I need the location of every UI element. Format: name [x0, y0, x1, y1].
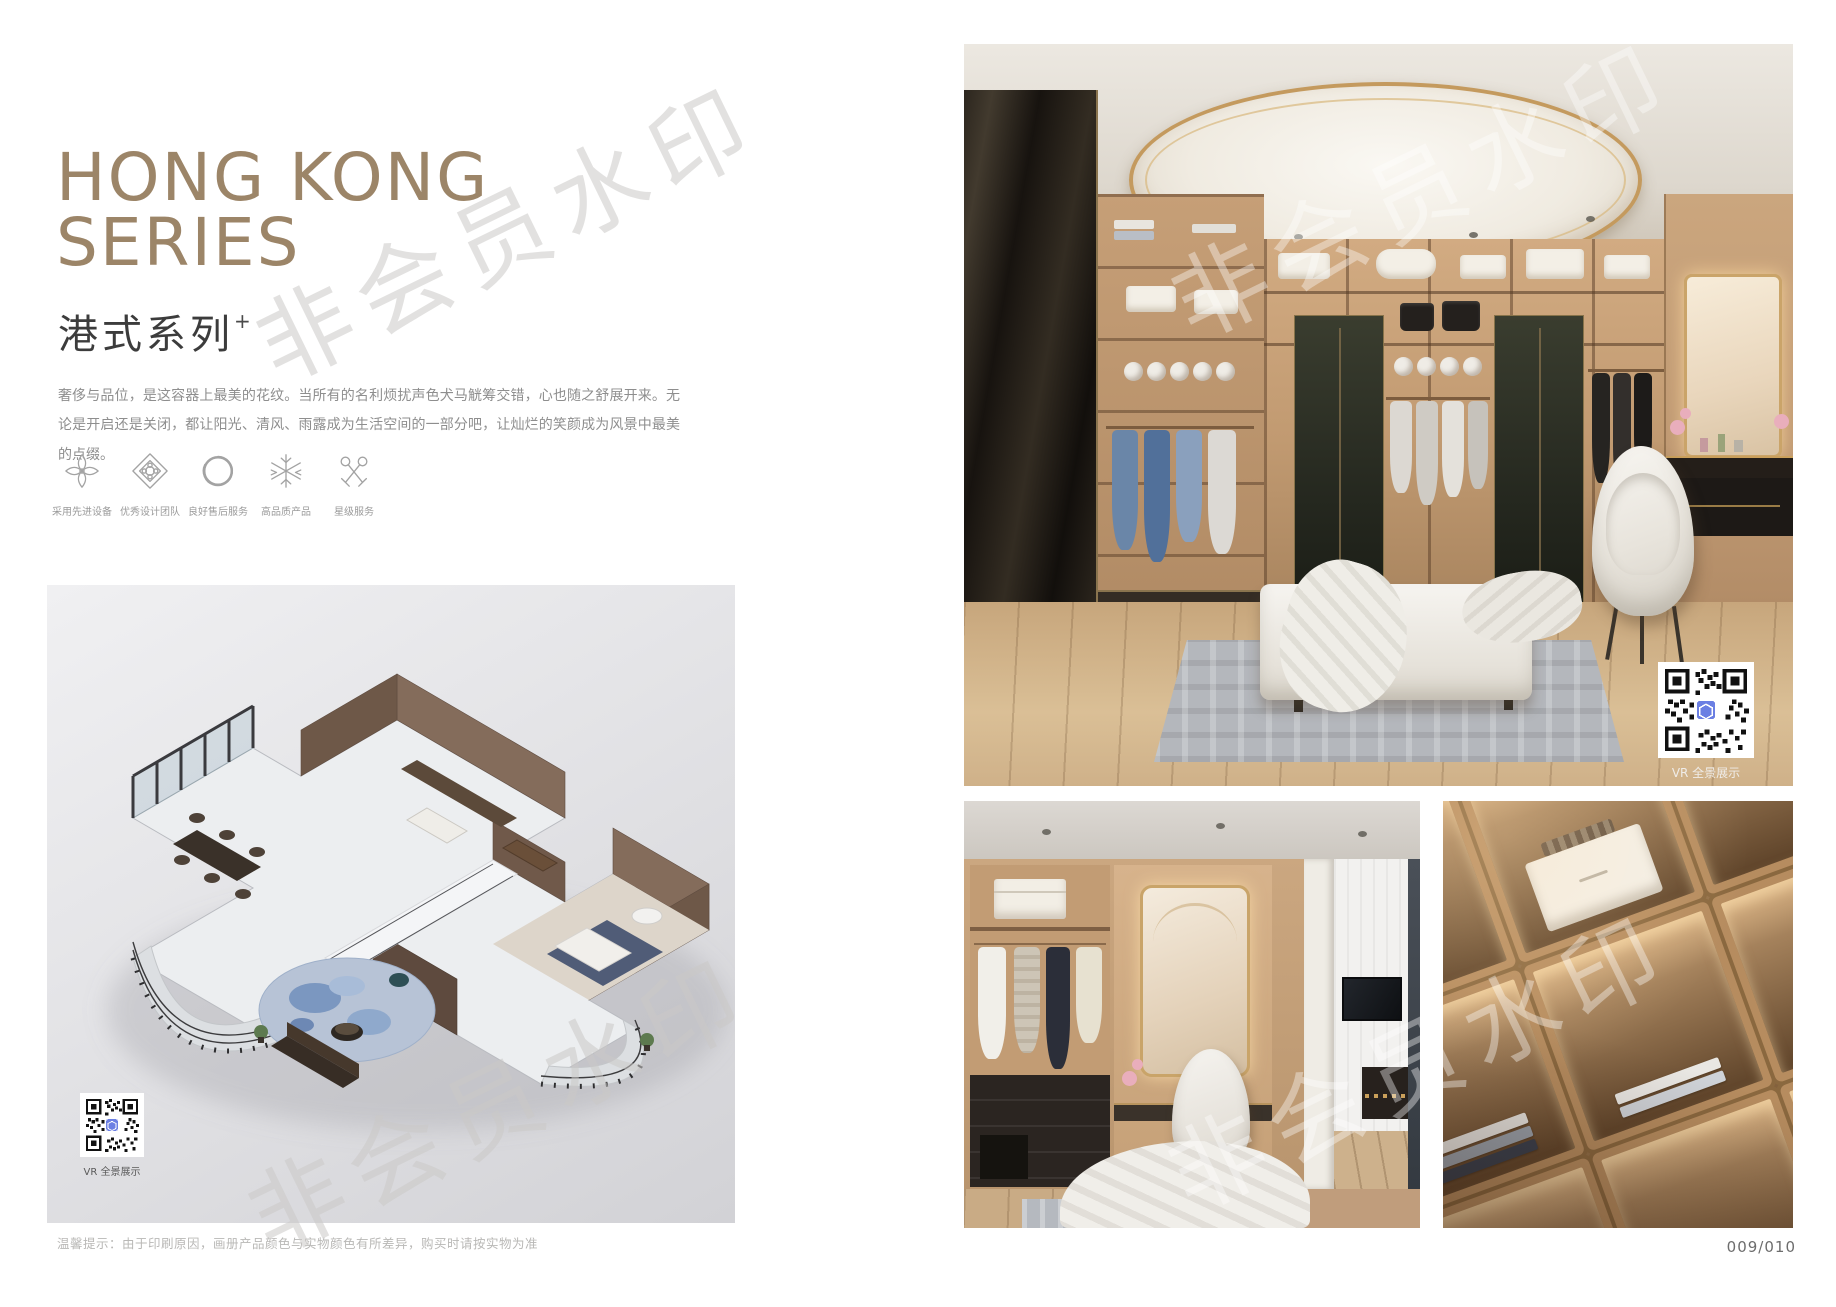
- pink-flowers: [1774, 414, 1789, 429]
- hanging-rod: [1106, 426, 1254, 429]
- feature-label: 采用先进设备: [50, 503, 114, 518]
- dressing-ceiling: [964, 801, 1420, 859]
- pink-flowers: [1122, 1071, 1137, 1086]
- spotlight: [1469, 232, 1478, 238]
- vanity-mirror: [1684, 274, 1782, 458]
- storage-box: [1604, 255, 1650, 279]
- pink-flowers: [1132, 1059, 1143, 1070]
- glass-partition: [1408, 859, 1420, 1189]
- hanging-garment: [1416, 401, 1438, 505]
- crossed-keys-icon: [335, 475, 373, 494]
- spotlight: [1358, 831, 1367, 837]
- feature-item: 良好售后服务: [186, 452, 250, 518]
- snowflake-icon: [267, 475, 305, 494]
- folded-clothes: [1114, 220, 1154, 229]
- dressing-room-image: [964, 801, 1420, 1228]
- storage-box: [1526, 249, 1584, 279]
- hat-row: [1392, 357, 1484, 380]
- spotlight: [1586, 216, 1595, 222]
- shelf-line: [1264, 291, 1664, 294]
- hanging-rod: [974, 943, 1106, 945]
- shelf-line: [970, 927, 1110, 931]
- hanging-garment: [1390, 401, 1412, 493]
- spotlight: [1216, 823, 1225, 829]
- feature-item: 采用先进设备: [50, 452, 114, 518]
- feature-item: 高品质产品: [254, 452, 318, 518]
- black-storage-box: [980, 1135, 1028, 1179]
- left-wardrobe-wall: [1096, 194, 1264, 634]
- navy-garment: [1046, 947, 1070, 1069]
- white-garment: [978, 947, 1006, 1059]
- title-plus-mark: +: [234, 309, 251, 333]
- floorplan-qr-code: [80, 1093, 144, 1157]
- storage-box: [1194, 290, 1238, 314]
- perfume-bottle: [1700, 438, 1708, 452]
- hanging-garment: [1468, 401, 1488, 489]
- lit-vanity-mirror: [1140, 885, 1250, 1077]
- title-cn-text: 港式系列: [58, 312, 234, 358]
- white-drawer-box: [1525, 823, 1664, 932]
- vanity-desk: [1666, 456, 1793, 480]
- title-line-1: HONG KONG: [56, 146, 489, 211]
- rosette-icon: [131, 475, 169, 494]
- patterned-garment: [1014, 947, 1040, 1053]
- hat-row: [1122, 362, 1237, 385]
- hero-qr-code: [1658, 662, 1754, 758]
- isometric-floorplan-render: [47, 585, 735, 1223]
- dark-wardrobe-right: [1494, 315, 1584, 605]
- title-line-2: SERIES: [56, 211, 489, 276]
- denim-garment: [1112, 430, 1138, 550]
- chair-leg: [1640, 610, 1644, 664]
- pillow: [1376, 249, 1436, 279]
- pink-flowers: [1680, 408, 1691, 419]
- shirt-garment: [1208, 430, 1236, 554]
- perfume-bottle: [1718, 434, 1725, 452]
- feature-icon-row: 采用先进设备 优秀设计团队 良好售后服务 高品质产品 星级服务: [50, 452, 386, 518]
- folded-clothes-stack: [1615, 1057, 1726, 1118]
- cream-garment: [1076, 947, 1102, 1043]
- feature-item: 优秀设计团队: [118, 452, 182, 518]
- perfume-bottle: [1734, 440, 1743, 452]
- hanging-garment: [1442, 401, 1464, 497]
- leather-bag: [1400, 303, 1434, 331]
- catalog-spread: HONG KONG SERIES 港式系列+ 奢侈与品位，是这容器上最美的花纹。…: [0, 0, 1836, 1307]
- folded-linen: [1278, 253, 1330, 279]
- hat-box: [1460, 255, 1506, 279]
- wall-tv: [1342, 977, 1402, 1021]
- dark-coat: [1592, 373, 1610, 483]
- series-title-cn: 港式系列+: [58, 302, 251, 360]
- pinwheel-flower-icon: [63, 475, 101, 494]
- enso-ring-icon: [199, 475, 237, 494]
- storage-box: [994, 879, 1066, 919]
- feature-label: 优秀设计团队: [118, 503, 182, 518]
- hero-vr-caption: VR 全景展示: [1658, 764, 1754, 781]
- open-closet: [970, 865, 1110, 1187]
- page-number: 009/010: [1727, 1238, 1796, 1256]
- folded-clothes-stack: [1443, 1112, 1538, 1186]
- folded-clothes: [1192, 224, 1236, 233]
- feature-label: 良好售后服务: [186, 503, 250, 518]
- floorplan-vr-caption: VR 全景展示: [70, 1163, 154, 1178]
- series-title-en: HONG KONG SERIES: [56, 146, 489, 275]
- folded-clothes: [1114, 231, 1154, 240]
- hanging-rod: [1386, 397, 1490, 400]
- feature-item: 星级服务: [322, 452, 386, 518]
- hero-image: VR 全景展示: [964, 44, 1793, 786]
- spotlight: [1042, 829, 1051, 835]
- pink-flowers: [1670, 420, 1685, 435]
- leather-bag: [1442, 301, 1480, 331]
- floorplan-image: VR 全景展示: [47, 585, 735, 1223]
- denim-garment: [1144, 430, 1170, 562]
- shelf-grid: [1443, 801, 1793, 1228]
- shelf-cell: [1533, 911, 1764, 1142]
- storage-box: [1126, 286, 1176, 312]
- feature-label: 星级服务: [322, 503, 386, 518]
- disclaimer-text: 温馨提示：由于印刷原因，画册产品颜色与实物颜色有所差异，购买时请按实物为准: [57, 1233, 538, 1252]
- hanging-rod: [1588, 369, 1664, 372]
- white-column: [1304, 859, 1334, 1189]
- shelf-detail-image: [1443, 801, 1793, 1228]
- feature-label: 高品质产品: [254, 503, 318, 518]
- denim-garment: [1176, 430, 1202, 542]
